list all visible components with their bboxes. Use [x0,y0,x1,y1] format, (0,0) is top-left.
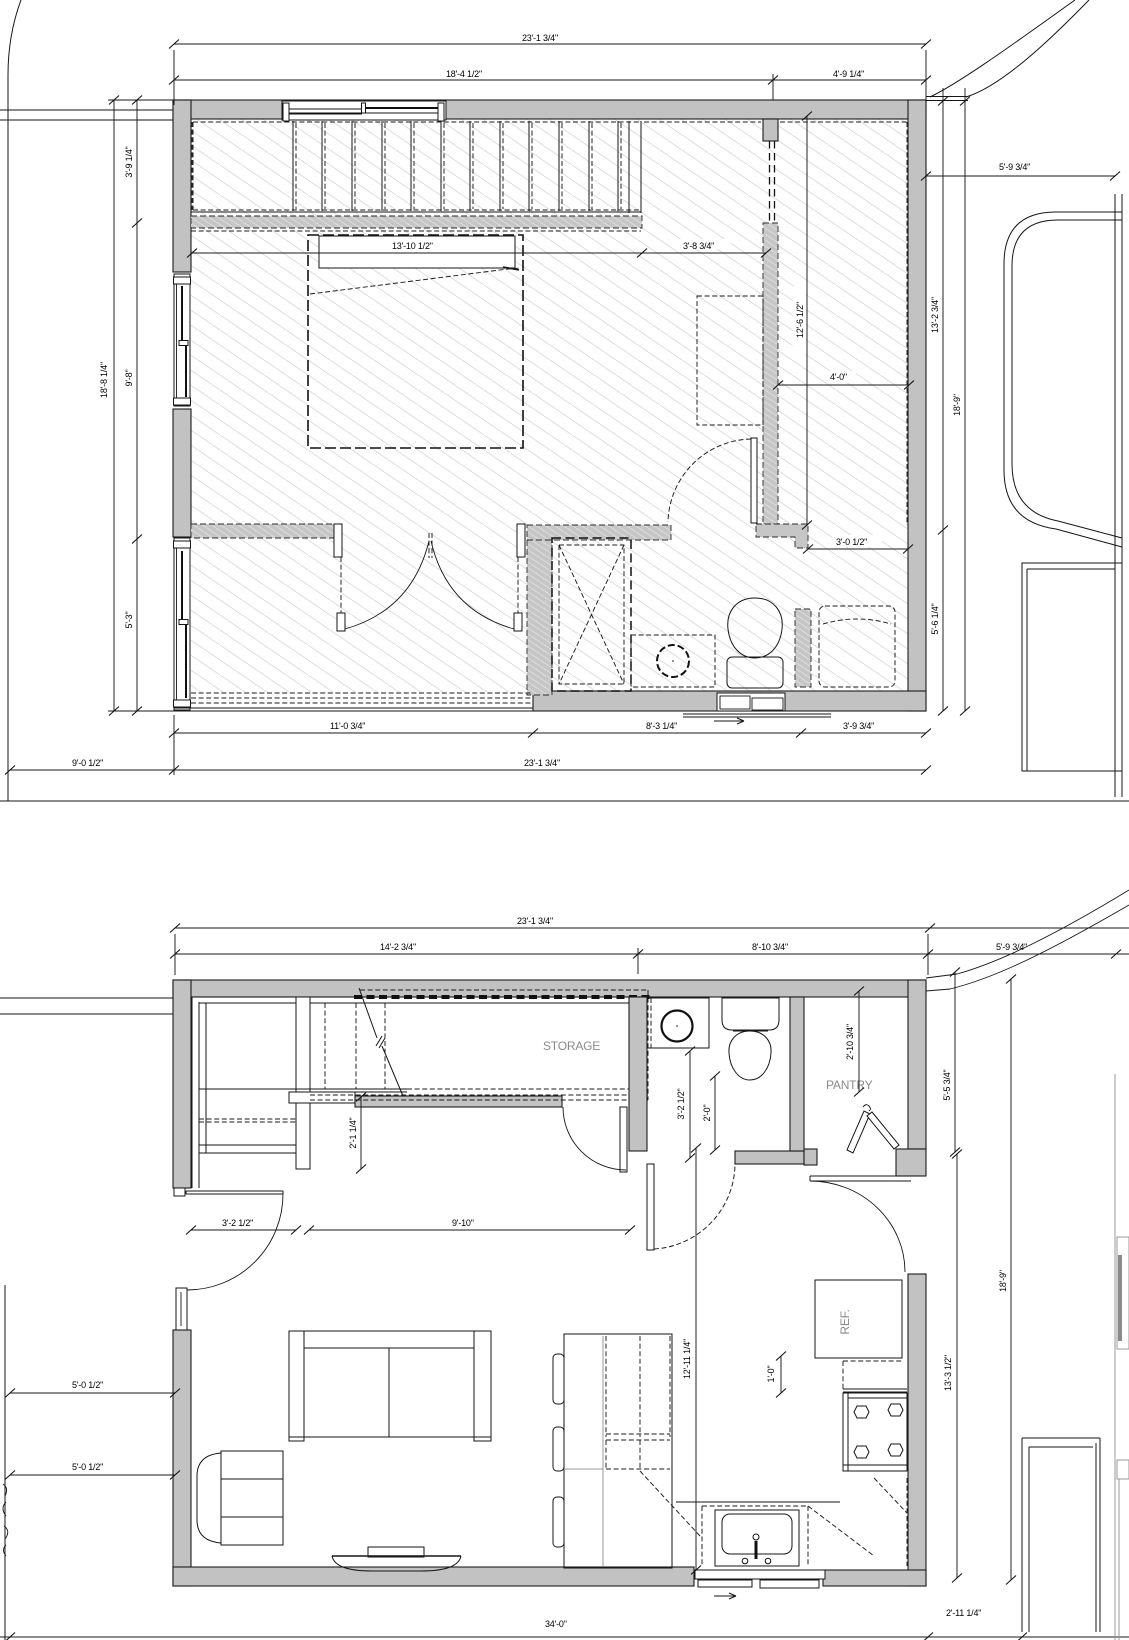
svg-text:11'-0 3/4": 11'-0 3/4" [330,721,365,731]
svg-text:PANTRY: PANTRY [826,1078,873,1092]
svg-text:8'-3 1/4": 8'-3 1/4" [646,721,677,731]
svg-text:1'-0": 1'-0" [766,1366,776,1383]
svg-text:3'-9 1/4": 3'-9 1/4" [124,146,134,177]
svg-text:13'-10 1/2": 13'-10 1/2" [392,241,433,251]
svg-text:5'-9 3/4": 5'-9 3/4" [996,942,1027,952]
svg-text:3'-2 1/2": 3'-2 1/2" [222,1218,253,1228]
svg-text:18'-4 1/2": 18'-4 1/2" [446,69,482,79]
svg-text:18'-9": 18'-9" [952,394,962,416]
svg-text:5'-6 1/4": 5'-6 1/4" [930,603,940,634]
svg-text:23'-1 3/4": 23'-1 3/4" [524,758,560,768]
svg-text:34'-0": 34'-0" [545,1619,567,1629]
svg-text:9'-10": 9'-10" [452,1218,474,1228]
svg-text:2'-10 3/4": 2'-10 3/4" [845,1024,855,1060]
svg-text:12'-11 1/4": 12'-11 1/4" [682,1339,692,1379]
svg-text:5'-9 3/4": 5'-9 3/4" [999,162,1030,172]
svg-text:5'-3": 5'-3" [124,612,134,629]
svg-text:5'-0 1/2": 5'-0 1/2" [72,1462,103,1472]
svg-text:4'-9 1/4": 4'-9 1/4" [833,69,864,79]
svg-text:3'-2 1/2": 3'-2 1/2" [676,1088,686,1119]
svg-text:18'-8 1/4": 18'-8 1/4" [99,362,109,398]
svg-text:23'-1 3/4": 23'-1 3/4" [517,916,553,926]
svg-text:REF.: REF. [838,1309,852,1334]
svg-text:23'-1 3/4": 23'-1 3/4" [522,33,558,43]
svg-text:2'-1 1/4": 2'-1 1/4" [348,1117,358,1148]
svg-text:5'-5 3/4": 5'-5 3/4" [942,1069,952,1100]
svg-text:5'-0 1/2": 5'-0 1/2" [72,1380,103,1390]
svg-text:2'-0": 2'-0" [702,1105,712,1122]
svg-text:4'-0": 4'-0" [830,372,847,382]
svg-text:9'-8": 9'-8" [124,370,134,387]
svg-text:12'-6 1/2": 12'-6 1/2" [795,302,805,338]
svg-text:13'-2 3/4": 13'-2 3/4" [930,297,940,333]
svg-text:2'-11 1/4": 2'-11 1/4" [946,1608,981,1618]
svg-text:13'-3 1/2": 13'-3 1/2" [943,1355,953,1391]
svg-text:3'-0 1/2": 3'-0 1/2" [836,537,867,547]
svg-text:3'-8 3/4": 3'-8 3/4" [683,241,714,251]
svg-text:8'-10 3/4": 8'-10 3/4" [752,942,788,952]
svg-text:18'-9": 18'-9" [998,1270,1008,1292]
svg-text:STORAGE: STORAGE [543,1039,600,1053]
svg-text:9'-0 1/2": 9'-0 1/2" [72,758,103,768]
svg-text:14'-2 3/4": 14'-2 3/4" [380,942,416,952]
svg-text:3'-9 3/4": 3'-9 3/4" [843,721,874,731]
